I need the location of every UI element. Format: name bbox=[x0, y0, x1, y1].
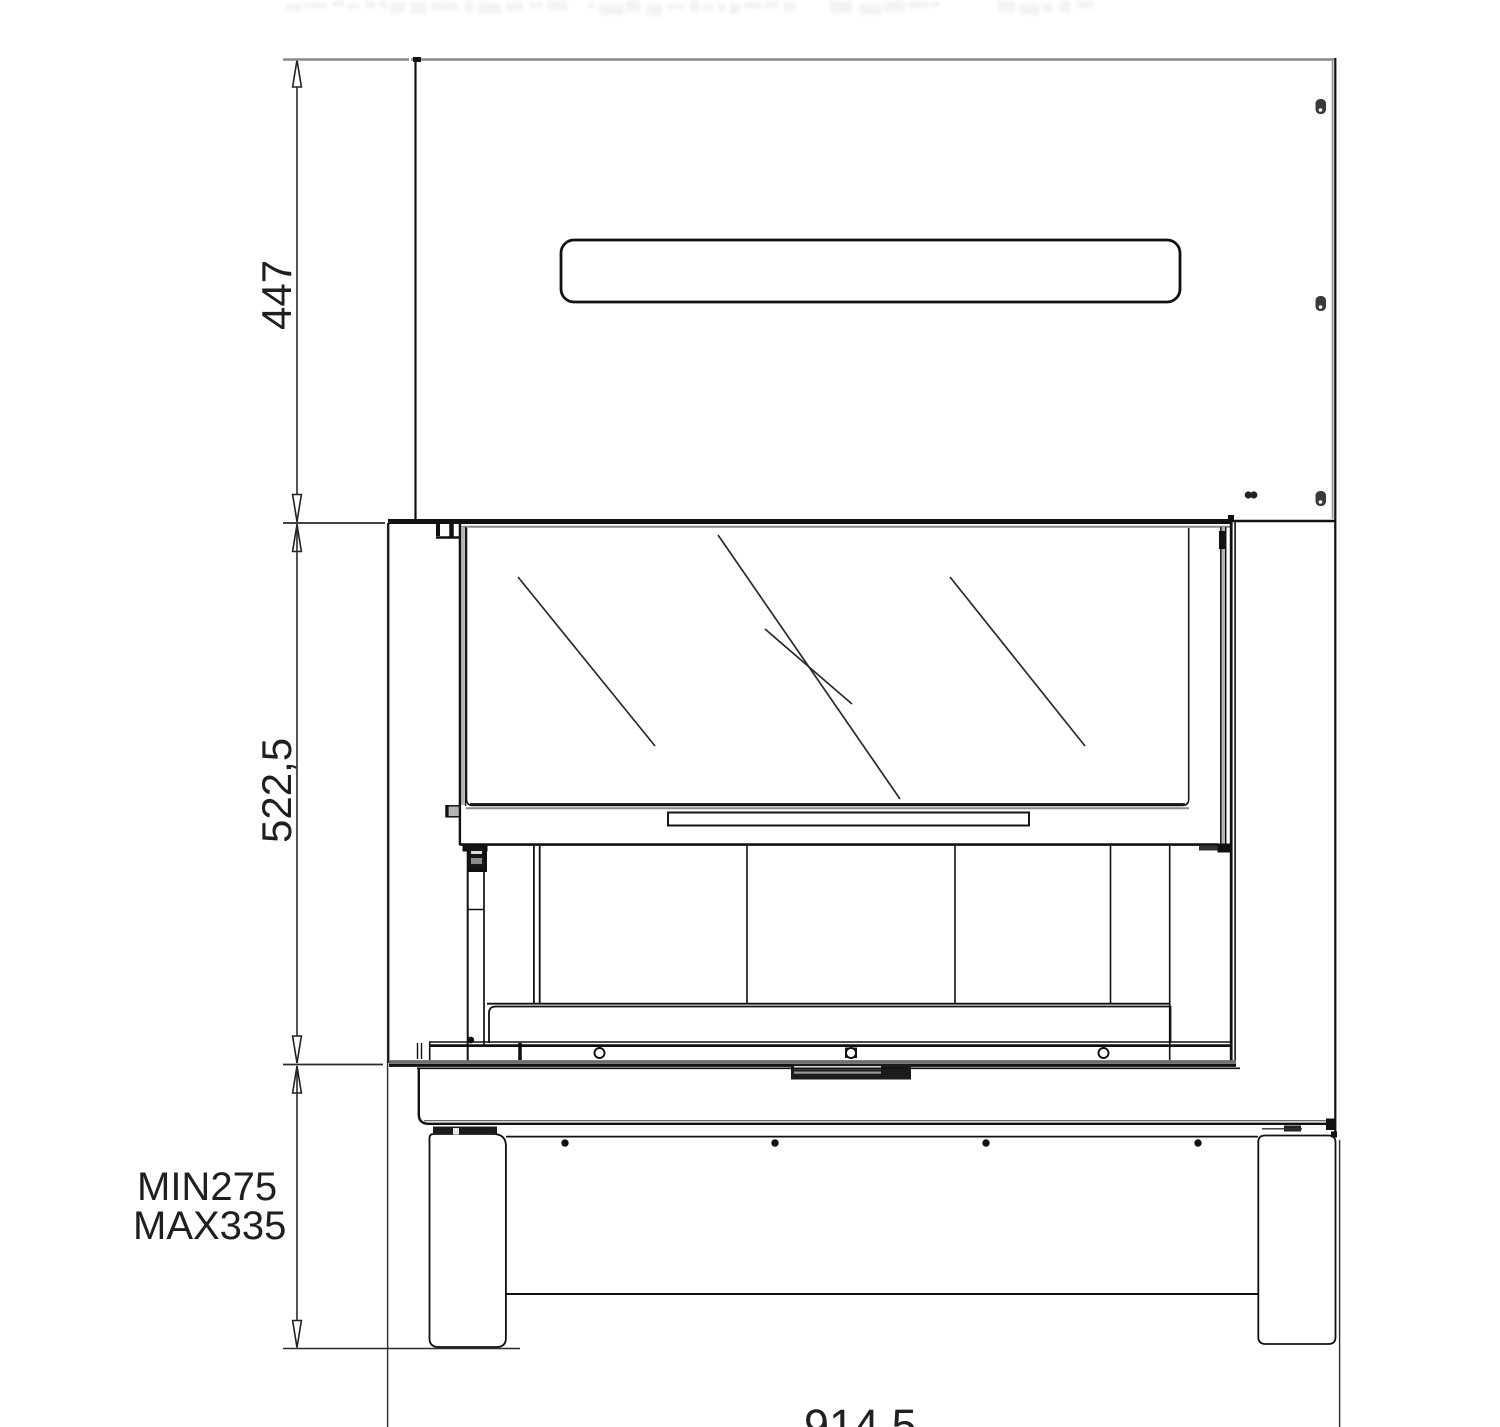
svg-text:447: 447 bbox=[253, 260, 300, 330]
svg-text:MIN275: MIN275 bbox=[137, 1165, 277, 1209]
svg-text:914,5: 914,5 bbox=[804, 1400, 917, 1427]
svg-text:MAX335: MAX335 bbox=[133, 1204, 286, 1248]
svg-text:522,5: 522,5 bbox=[253, 738, 300, 843]
